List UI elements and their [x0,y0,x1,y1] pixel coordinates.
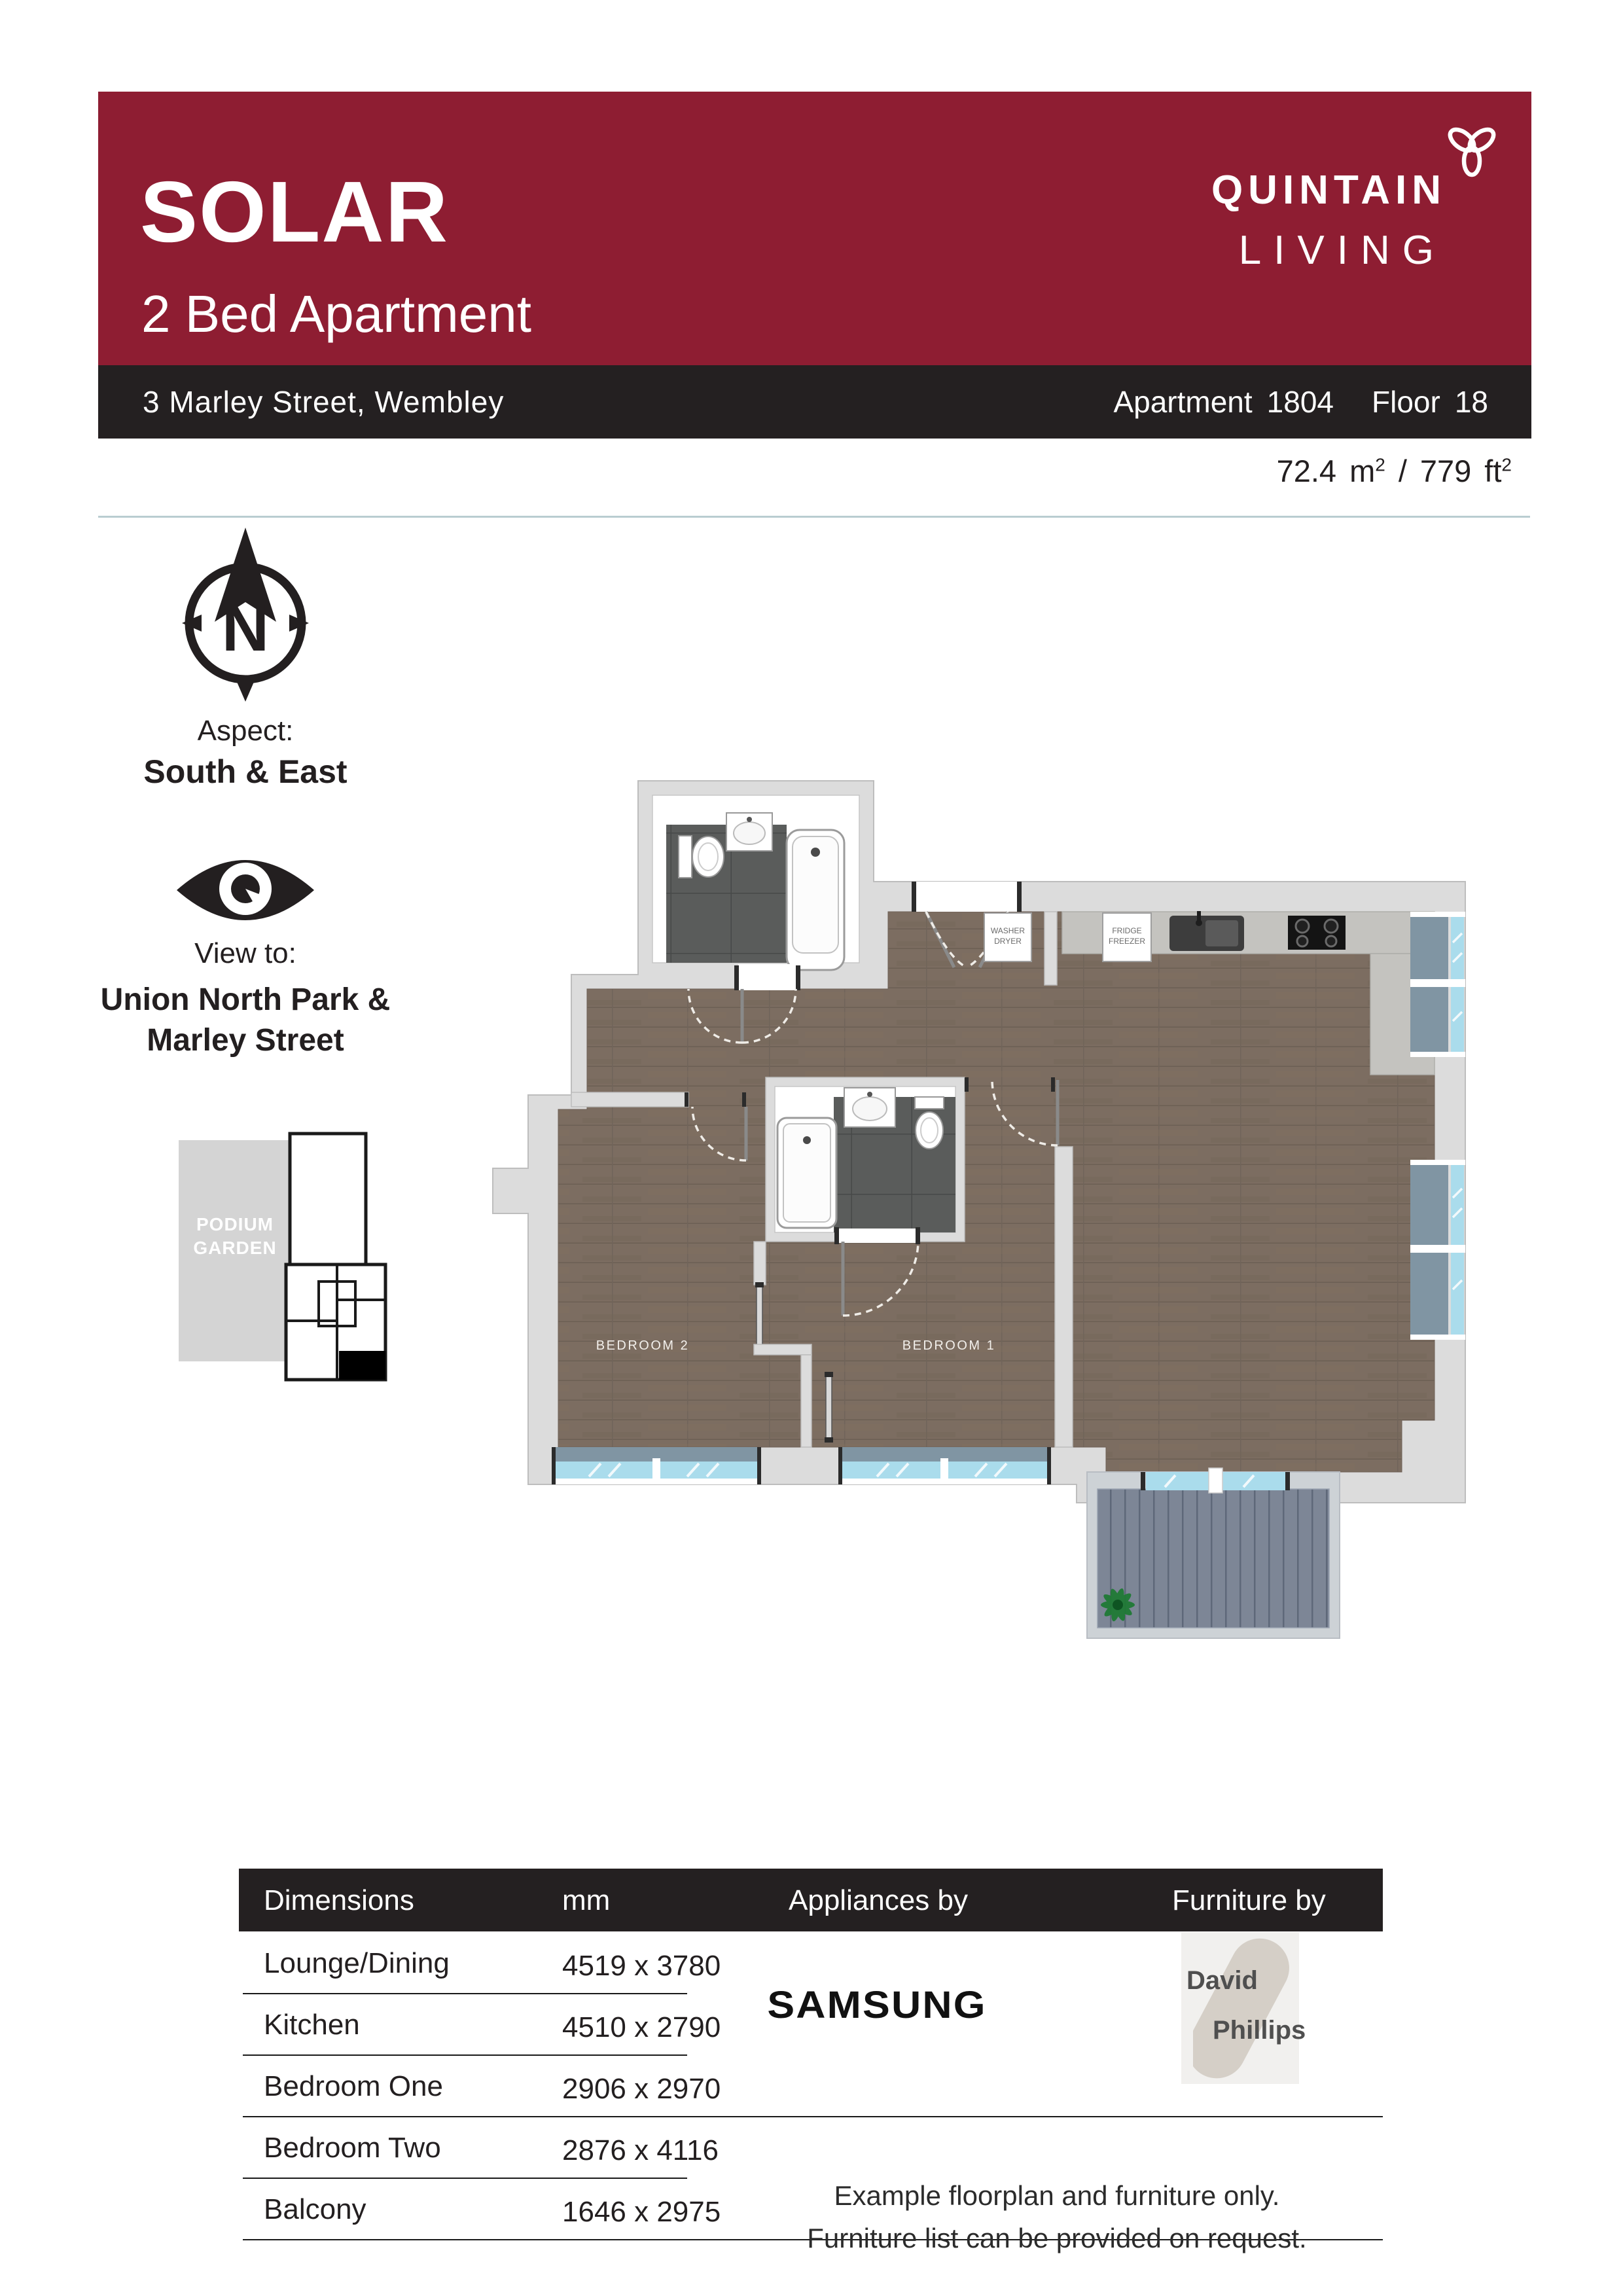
apartment-type-subtitle: 2 Bed Apartment [141,288,531,340]
bedroom1-label: BEDROOM 1 [902,1338,996,1353]
bedroom1-window [838,1447,1051,1484]
apartment-location-marker [339,1351,385,1380]
podium-garden-label-2: GARDEN [193,1238,276,1258]
row-label: Lounge/Dining [264,1947,450,1980]
compass-icon: N [177,522,314,704]
col-mm: mm [562,1884,610,1917]
svg-text:FREEZER: FREEZER [1109,937,1145,946]
eye-icon [171,846,319,935]
table-row: Bedroom Two 2876 x 4116 [239,2116,1383,2178]
ensuite-toilet [915,1097,944,1149]
david-phillips-line2: Phillips [1213,2016,1306,2045]
disclaimer-line1: Example floorplan and furniture only. [733,2174,1381,2217]
hob [1288,916,1346,950]
row-value: 2876 x 4116 [562,2134,719,2167]
apartment-floor-info: Apartment 1804 Floor 18 [1113,384,1488,420]
table-header: Dimensions mm Appliances by Furniture by [239,1869,1383,1931]
row-label: Bedroom Two [264,2132,441,2164]
ensuite-basin [844,1088,895,1127]
floor-label: Floor [1372,384,1440,420]
address-bar: 3 Marley Street, Wembley Apartment 1804 … [98,365,1531,439]
aspect-value: South & East [118,753,373,791]
row-value: 4510 x 2790 [562,2011,721,2044]
kitchen-sink [1169,911,1244,951]
living-window-lower [1410,1160,1465,1340]
floorplan-drawing: WASHER DRYER FRIDGE FREEZER [491,772,1479,1656]
david-phillips-line1: David [1186,1966,1258,1996]
development-title: SOLAR [140,169,449,255]
david-phillips-logo: David Phillips [1181,1932,1299,2084]
area-imperial-value: 779 [1420,453,1471,489]
view-value-line2: Marley Street [85,1022,406,1058]
toilet [679,836,724,878]
washer-dryer: WASHER DRYER [984,913,1031,961]
row-label: Kitchen [264,2009,360,2041]
view-to-label: View to: [144,937,347,970]
samsung-logo: SAMSUNG [760,1983,993,2027]
trefoil-icon [1446,123,1497,186]
site-minimap: PODIUM GARDEN [173,1124,396,1389]
disclaimer-text: Example floorplan and furniture only. Fu… [733,2174,1381,2259]
podium-garden-label-1: PODIUM [196,1214,274,1234]
bedroom2-window [552,1447,761,1484]
area-metric-value: 72.4 [1277,453,1336,489]
apartment-label: Apartment [1113,384,1252,420]
area-line: 72.4 m2 / 779 ft2 [98,453,1512,492]
col-appliances: Appliances by [789,1884,968,1917]
svg-text:WASHER: WASHER [991,926,1026,935]
address-text: 3 Marley Street, Wembley [143,384,504,420]
view-value-line1: Union North Park & [85,982,406,1018]
fridge-freezer: FRIDGE FREEZER [1103,913,1151,961]
row-label: Balcony [264,2193,366,2226]
floor-number: 18 [1455,384,1488,420]
row-value: 2906 x 2970 [562,2073,721,2106]
row-value: 4519 x 3780 [562,1950,721,1982]
area-separator: / [1399,453,1407,489]
bedroom2-label: BEDROOM 2 [596,1338,690,1353]
row-value: 1646 x 2975 [562,2196,721,2229]
compass-north-letter: N [222,592,269,665]
row-label: Bedroom One [264,2070,443,2103]
svg-text:FRIDGE: FRIDGE [1112,926,1141,935]
balcony [1087,1472,1340,1638]
apartment-number: 1804 [1267,384,1334,420]
living-window-upper [1410,912,1465,1057]
brand-name: QUINTAIN [1211,170,1446,211]
area-metric-unit: m2 [1349,453,1385,489]
header-separator-line [98,516,1530,518]
col-dimensions: Dimensions [264,1884,414,1917]
svg-text:DRYER: DRYER [994,937,1022,946]
basin [726,813,772,851]
disclaimer-line2: Furniture list can be provided on reques… [733,2217,1381,2259]
area-imperial-unit: ft2 [1484,453,1512,489]
brand-name-second: LIVING [1239,230,1446,271]
hall-living-wall-stub [1044,912,1057,985]
header-banner: SOLAR 2 Bed Apartment QUINTAIN LIVING [98,92,1531,365]
col-furniture: Furniture by [1172,1884,1326,1917]
aspect-label: Aspect: [144,715,347,747]
floorplan-page: SOLAR 2 Bed Apartment QUINTAIN LIVING 3 … [0,0,1623,2296]
